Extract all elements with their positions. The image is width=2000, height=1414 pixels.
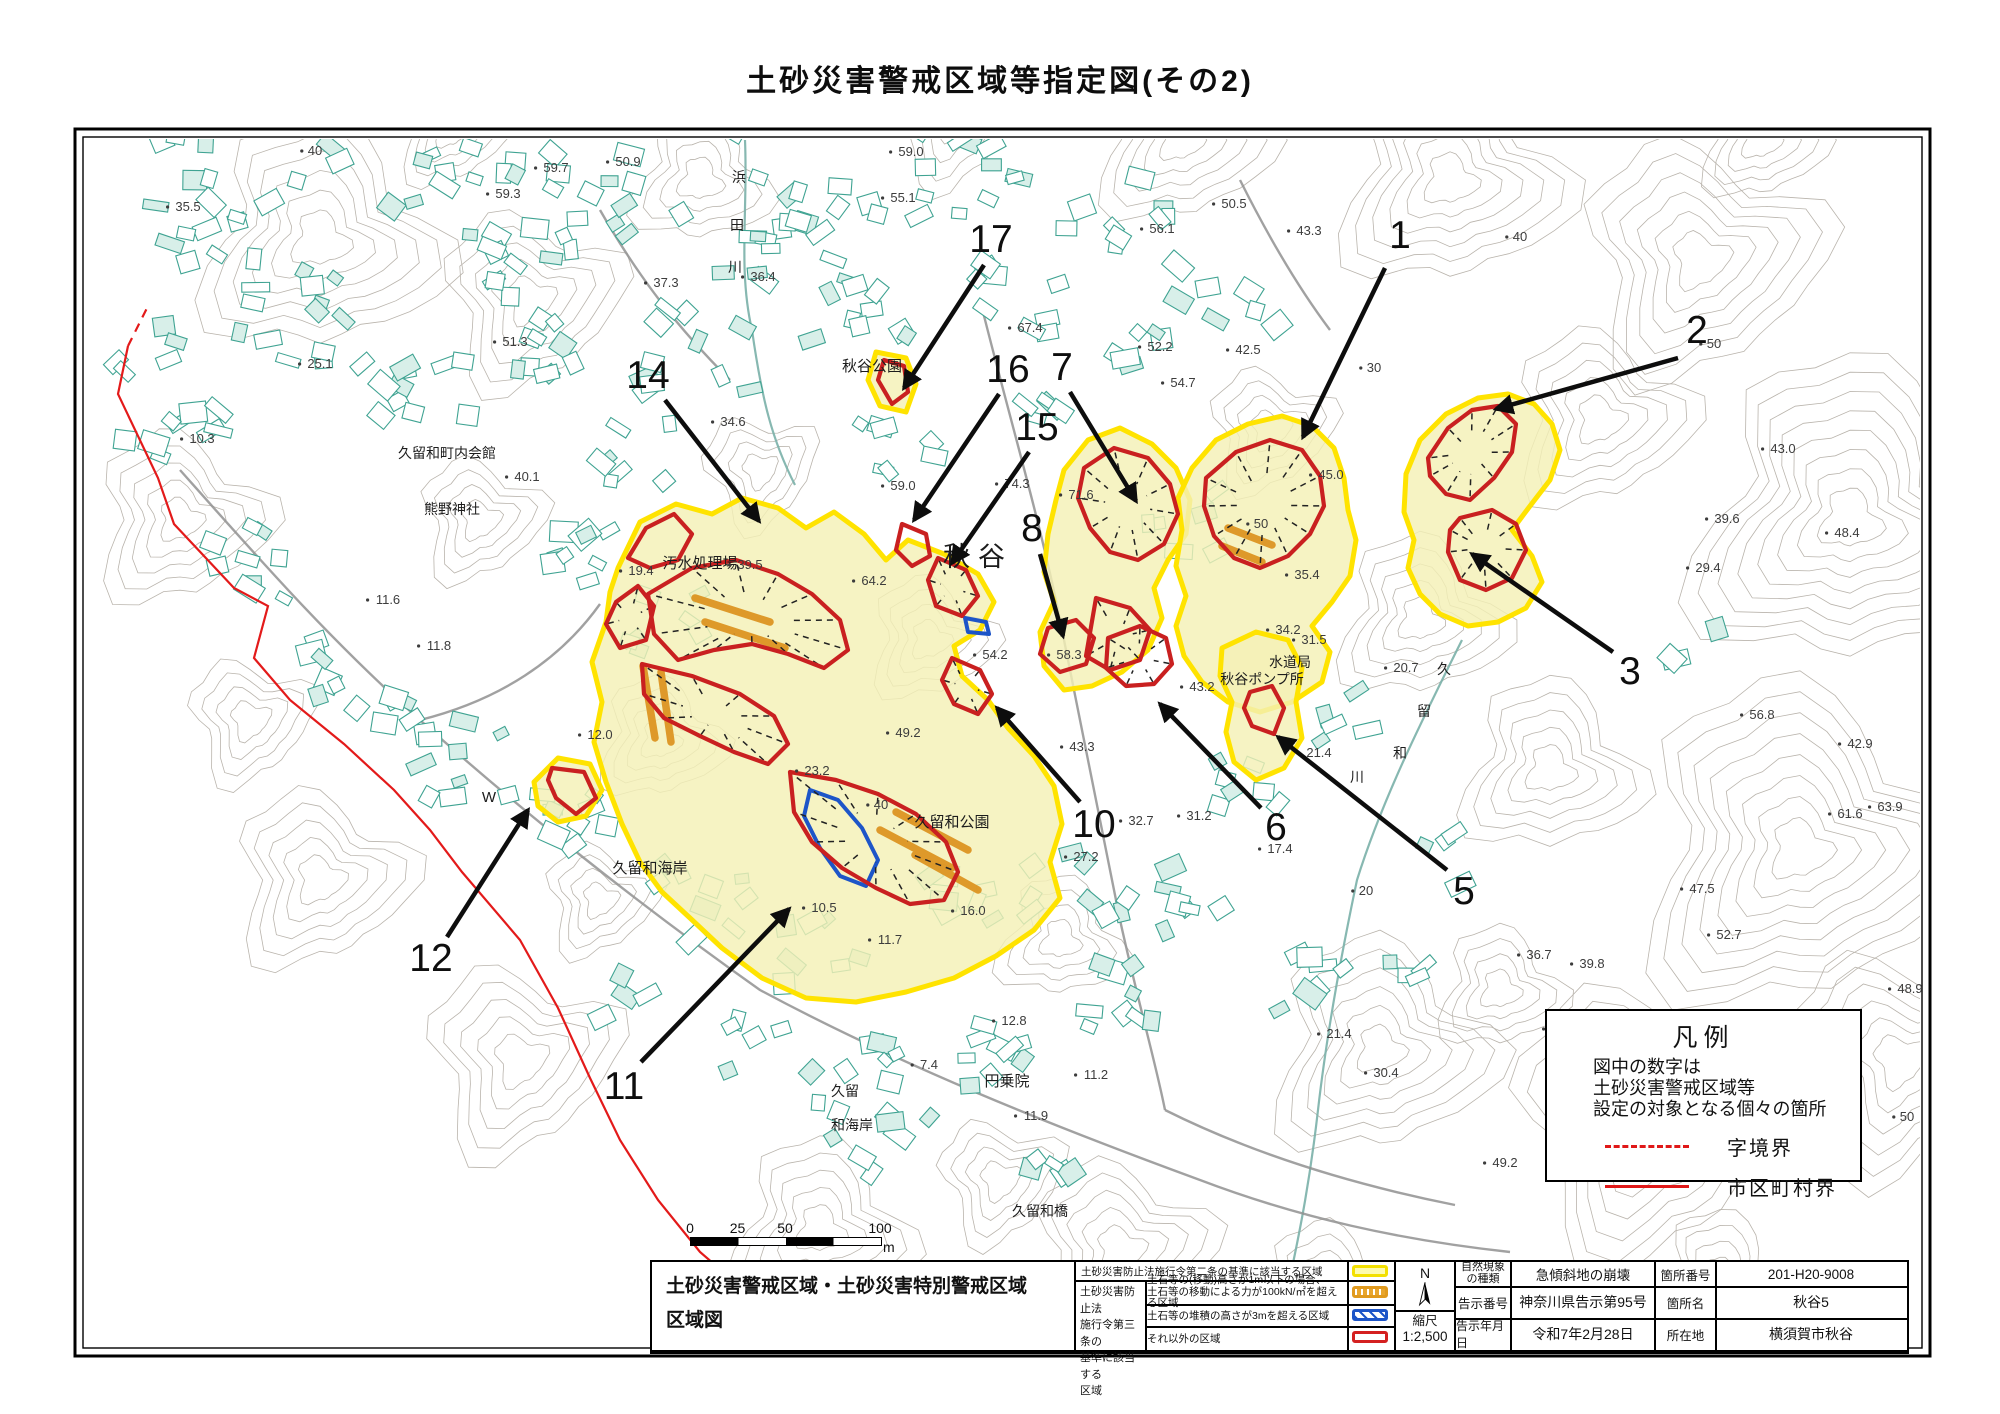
spot-elevation-dot	[1285, 573, 1288, 576]
scale-tick: 25	[730, 1220, 746, 1236]
spot-elevation: 11.9	[1024, 1108, 1048, 1123]
spot-elevation-dot	[1140, 227, 1143, 230]
place-label: 久留	[831, 1083, 859, 1099]
spot-elevation-dot	[1074, 1073, 1077, 1076]
spot-elevation: 64.2	[861, 573, 886, 588]
spot-elevation: 47.5	[1689, 881, 1714, 896]
spot-elevation-dot	[868, 938, 871, 941]
spot-elevation: 48.4	[1834, 525, 1859, 540]
spot-elevation-dot	[1705, 517, 1708, 520]
spot-elevation-dot	[1226, 348, 1229, 351]
spot-elevation-dot	[1838, 742, 1841, 745]
callout-number: 16	[986, 348, 1029, 391]
spot-elevation-dot	[881, 484, 884, 487]
callout-number: 10	[1072, 803, 1115, 846]
spot-elevation: 39.8	[1579, 956, 1604, 971]
field-value: 横須賀市秋谷	[1717, 1318, 1905, 1350]
spot-elevation: 43.3	[1296, 223, 1321, 238]
spot-elevation-dot	[1161, 381, 1164, 384]
spot-elevation-dot	[728, 563, 731, 566]
spot-elevation-dot	[866, 803, 869, 806]
law-row-deposit: 土石等の堆積の高さが3mを超える区域	[1147, 1305, 1345, 1326]
spot-elevation: 34.6	[720, 414, 745, 429]
solid-line-sample	[1605, 1185, 1689, 1188]
spot-elevation-dot	[1505, 235, 1508, 238]
place-label: 秋谷ポンプ所	[1220, 671, 1304, 687]
field-value: 201-H20-9008	[1717, 1262, 1905, 1286]
table-grid-line	[1145, 1304, 1396, 1306]
scale-tick: 0	[686, 1220, 694, 1236]
spot-elevation-dot	[1359, 366, 1362, 369]
place-label: 浜	[732, 169, 746, 185]
field-label: 所在地	[1656, 1318, 1715, 1350]
spot-elevation-dot	[166, 205, 169, 208]
table-grid-line	[1074, 1262, 1076, 1350]
place-label: 円乗院	[984, 1072, 1029, 1090]
scale-bar-ticks: 02550100	[690, 1220, 920, 1237]
spot-elevation: 11.6	[376, 592, 400, 607]
spot-elevation: 42.9	[1847, 736, 1872, 751]
scale-bar: 02550100 m	[690, 1220, 920, 1246]
spot-elevation-dot	[1008, 326, 1011, 329]
spot-elevation-dot	[1517, 953, 1520, 956]
field-label: 箇所番号	[1656, 1262, 1715, 1286]
spot-elevation: 43.0	[1770, 441, 1795, 456]
legend-item-aza-boundary: 字境界	[1605, 1132, 1860, 1161]
scale-bar-unit: m	[883, 1239, 895, 1255]
spot-elevation-dot	[911, 1063, 914, 1066]
spot-elevation: 56.1	[1149, 221, 1174, 236]
spot-elevation-dot	[1292, 638, 1295, 641]
spot-elevation-dot	[300, 149, 303, 152]
special-move-swatch	[1352, 1286, 1388, 1298]
spot-elevation: 56.8	[1749, 707, 1774, 722]
spot-elevation-dot	[1888, 987, 1891, 990]
spot-elevation: 50	[1900, 1109, 1914, 1124]
spot-elevation: 61.6	[1837, 806, 1862, 821]
field-label: 自然現象 の種類	[1456, 1262, 1510, 1286]
north-cell: N	[1396, 1262, 1454, 1310]
spot-elevation-dot	[1246, 522, 1249, 525]
spot-elevation: 50	[1254, 516, 1268, 531]
spot-elevation-dot	[1825, 531, 1828, 534]
spot-elevation: 34.2	[1275, 622, 1300, 637]
spot-elevation-dot	[1828, 812, 1831, 815]
spot-elevation: 35.5	[175, 199, 200, 214]
table-grid-line	[1454, 1318, 1907, 1320]
field-label: 告示番号	[1456, 1286, 1510, 1318]
spot-elevation: 45.0	[1318, 467, 1343, 482]
spot-elevation: 10.5	[811, 900, 836, 915]
table-grid-line	[1454, 1286, 1907, 1288]
spot-elevation: 12.0	[587, 727, 612, 742]
spot-elevation: 54.7	[1170, 375, 1195, 390]
spot-elevation-dot	[1180, 685, 1183, 688]
spot-elevation: 35.4	[1294, 567, 1319, 582]
spot-elevation: 40	[1513, 229, 1527, 244]
spot-elevation: 12.8	[1001, 1013, 1026, 1028]
spot-elevation-dot	[1064, 855, 1067, 858]
spot-elevation-dot	[417, 644, 420, 647]
warning-zone-swatch	[1352, 1265, 1388, 1277]
field-value: 神奈川県告示第95号	[1512, 1286, 1654, 1318]
callout-number: 14	[626, 354, 669, 397]
legend-item-municipal-boundary: 市区町村界	[1605, 1172, 1860, 1201]
table-grid-line	[1145, 1280, 1147, 1350]
law-article3-group-label: 土砂災害防止法 施行令第三条の 基準に該当する 区域	[1076, 1281, 1144, 1350]
spot-elevation-dot	[802, 906, 805, 909]
north-label: N	[1420, 1265, 1430, 1281]
spot-elevation: 51.3	[502, 334, 527, 349]
spot-elevation: 71.6	[1068, 487, 1093, 502]
spot-elevation-dot	[1680, 887, 1683, 890]
spot-elevation: 50.5	[1221, 196, 1246, 211]
spot-elevation: 54.2	[982, 647, 1007, 662]
spot-elevation: 27.2	[1073, 849, 1098, 864]
spot-elevation: 42.5	[1235, 342, 1260, 357]
map-sheet-title: 土砂災害警戒区域・土砂災害特別警戒区域 区域図	[652, 1262, 1074, 1350]
legend-item-label: 字境界	[1727, 1132, 1793, 1161]
spot-elevation: 50	[1707, 336, 1721, 351]
spot-elevation: 20	[1359, 883, 1373, 898]
place-label: 久留和橋	[1012, 1203, 1068, 1219]
spot-elevation: 20.7	[1393, 660, 1418, 675]
spot-elevation: 29.4	[1695, 560, 1720, 575]
spot-elevation-dot	[493, 340, 496, 343]
spot-elevation: 43.3	[1069, 739, 1094, 754]
field-value: 令和7年2月28日	[1512, 1318, 1654, 1350]
legend-note: 図中の数字は 土砂災害警戒区域等 設定の対象となる個々の箇所	[1593, 1057, 1860, 1121]
place-label: 秋谷公園	[842, 358, 902, 375]
spot-elevation-dot	[741, 275, 744, 278]
spot-elevation: 40.1	[514, 469, 539, 484]
spot-elevation: 40	[308, 143, 322, 158]
spot-elevation: 49.2	[895, 725, 920, 740]
spot-elevation-dot	[1761, 447, 1764, 450]
place-label: 川	[1350, 769, 1364, 785]
table-grid-line	[1654, 1262, 1656, 1350]
spot-elevation-dot	[505, 475, 508, 478]
spot-elevation-dot	[606, 160, 609, 163]
scale-tick: 100	[868, 1220, 891, 1236]
spot-elevation: 55.1	[890, 190, 915, 205]
legend-title: 凡例	[1547, 1018, 1860, 1054]
spot-elevation: 36.4	[750, 269, 775, 284]
special-other-swatch	[1352, 1331, 1388, 1343]
table-grid-line	[1394, 1310, 1456, 1312]
spot-elevation-dot	[578, 733, 581, 736]
spot-elevation: 59.0	[890, 478, 915, 493]
spot-elevation: 39.5	[737, 557, 762, 572]
table-grid-line	[1394, 1262, 1396, 1350]
law-row-other: それ以外の区域	[1147, 1327, 1345, 1350]
spot-elevation: 7.4	[920, 1057, 938, 1072]
callout-number: 8	[1021, 507, 1043, 550]
place-label: 久留和町内会館	[398, 445, 496, 461]
spot-elevation: 21.4	[1306, 745, 1331, 760]
spot-elevation-dot	[1060, 745, 1063, 748]
callout-number: 7	[1051, 346, 1073, 389]
place-label: 和海岸	[831, 1117, 873, 1133]
callout-number: 3	[1619, 650, 1641, 693]
spot-elevation: 43.2	[1189, 679, 1214, 694]
field-label: 箇所名	[1656, 1286, 1715, 1318]
spot-elevation-dot	[995, 482, 998, 485]
spot-elevation: 59.3	[495, 186, 520, 201]
spot-elevation-dot	[534, 166, 537, 169]
spot-elevation: 11.2	[1084, 1067, 1108, 1082]
spot-elevation: 10.3	[189, 431, 214, 446]
place-label: 留	[1417, 703, 1431, 719]
place-label: 久留和公園	[914, 814, 989, 831]
spot-elevation: 30	[1367, 360, 1381, 375]
spot-elevation-dot	[1570, 962, 1573, 965]
spot-elevation-dot	[486, 192, 489, 195]
spot-elevation: 32.7	[1128, 813, 1153, 828]
spot-elevation-dot	[1740, 713, 1743, 716]
place-label: 和	[1393, 745, 1407, 761]
callout-number: 2	[1686, 309, 1708, 352]
field-value: 急傾斜地の崩壊	[1512, 1262, 1654, 1286]
spot-elevation-dot	[886, 731, 889, 734]
spot-elevation: 40	[874, 797, 888, 812]
spot-elevation-dot	[1317, 1032, 1320, 1035]
spot-elevation: 21.4	[1326, 1026, 1351, 1041]
spot-elevation-dot	[1483, 1161, 1486, 1164]
scale-cell: 縮尺 1:2,500	[1396, 1310, 1454, 1350]
spot-elevation: 11.8	[427, 638, 451, 653]
spot-elevation: 67.4	[1017, 320, 1042, 335]
spot-elevation-dot	[795, 769, 798, 772]
field-label: 告示年月日	[1456, 1318, 1510, 1350]
spot-elevation-dot	[180, 437, 183, 440]
spot-elevation: 52.7	[1716, 927, 1741, 942]
spot-elevation-dot	[711, 420, 714, 423]
spot-elevation: 52.2	[1147, 339, 1172, 354]
spot-elevation-dot	[644, 281, 647, 284]
spot-elevation-dot	[619, 569, 622, 572]
scale-value: 1:2,500	[1402, 1329, 1447, 1346]
spot-elevation-dot	[852, 579, 855, 582]
spot-elevation: 16.0	[960, 903, 985, 918]
spot-elevation: 37.3	[653, 275, 678, 290]
field-value: 秋谷5	[1717, 1286, 1905, 1318]
place-label: 熊野神社	[424, 501, 480, 517]
spot-elevation-dot	[1364, 1071, 1367, 1074]
table-grid-line	[1454, 1262, 1456, 1350]
spot-elevation: 50.9	[615, 154, 640, 169]
spot-elevation: 25.1	[307, 356, 332, 371]
spot-elevation-dot	[992, 1019, 995, 1022]
table-grid-line	[1510, 1262, 1512, 1350]
place-label: 久	[1437, 661, 1451, 677]
spot-elevation-dot	[881, 196, 884, 199]
place-label: 久留和海岸	[612, 860, 687, 877]
spot-elevation-dot	[973, 653, 976, 656]
spot-elevation-dot	[1686, 566, 1689, 569]
scale-tick: 50	[777, 1220, 793, 1236]
hazard-map-canvas: 秋谷秋谷公園汚水処理場久留和町内会館熊野神社久留和公園久留和海岸久留和海岸円乗院…	[0, 0, 2000, 1414]
spot-elevation-dot	[1384, 666, 1387, 669]
spot-elevation-dot	[1119, 819, 1122, 822]
spot-elevation: 39.6	[1714, 511, 1739, 526]
callout-number: 12	[409, 937, 452, 980]
scale-bar-rule	[690, 1237, 882, 1246]
table-grid-line	[1347, 1262, 1349, 1350]
spot-elevation: 30.4	[1373, 1065, 1398, 1080]
spot-elevation-dot	[951, 909, 954, 912]
spot-elevation-dot	[1212, 202, 1215, 205]
spot-elevation-dot	[1309, 473, 1312, 476]
place-label: 水道局	[1269, 654, 1311, 670]
spot-elevation-dot	[1351, 889, 1354, 892]
spot-elevation: 59.0	[898, 144, 923, 159]
place-label: 川	[728, 259, 742, 275]
dashed-line-sample	[1605, 1145, 1689, 1148]
spot-elevation-dot	[889, 150, 892, 153]
north-arrow-icon	[1416, 1281, 1434, 1307]
spot-elevation: 31.2	[1186, 808, 1211, 823]
spot-elevation-dot	[1868, 805, 1871, 808]
callout-number: 5	[1453, 870, 1475, 913]
map-legend: 凡例 図中の数字は 土砂災害警戒区域等 設定の対象となる個々の箇所 字境界 市区…	[1545, 1009, 1862, 1182]
table-grid-line	[1145, 1326, 1396, 1328]
scale-label: 縮尺	[1412, 1314, 1437, 1330]
table-grid-line	[1074, 1280, 1396, 1282]
spot-elevation: 23.2	[804, 763, 829, 778]
callout-number: 15	[1015, 406, 1058, 449]
spot-elevation: 48.9	[1897, 981, 1922, 996]
spot-elevation-dot	[1059, 493, 1062, 496]
spot-elevation-dot	[1177, 814, 1180, 817]
callout-number: 17	[969, 218, 1012, 261]
law-row-move: 土石等の(移動)高さが1m以下の場合、 土石等の移動による力が100kN/㎡を超…	[1147, 1281, 1345, 1304]
spot-elevation: 36.7	[1526, 947, 1551, 962]
callout-number: 6	[1265, 806, 1287, 849]
spot-elevation-dot	[298, 362, 301, 365]
spot-elevation-dot	[1892, 1115, 1895, 1118]
spot-elevation-dot	[1047, 653, 1050, 656]
spot-elevation-dot	[1287, 229, 1290, 232]
spot-elevation: 49.2	[1492, 1155, 1517, 1170]
spot-elevation: 19.4	[628, 563, 653, 578]
spot-elevation: 63.9	[1877, 799, 1902, 814]
spot-elevation: 11.7	[878, 932, 902, 947]
callout-number: 11	[604, 1065, 645, 1108]
place-label: W	[482, 789, 497, 806]
spot-elevation-dot	[1266, 628, 1269, 631]
place-label: 田	[730, 217, 744, 233]
spot-elevation: 58.3	[1056, 647, 1081, 662]
info-table: 土砂災害警戒区域・土砂災害特別警戒区域 区域図 土砂災害防止法施行令第二条の基準…	[650, 1260, 1909, 1354]
spot-elevation-dot	[1138, 345, 1141, 348]
legend-item-label: 市区町村界	[1727, 1172, 1837, 1201]
special-deposit-swatch	[1352, 1309, 1388, 1321]
spot-elevation-dot	[1014, 1114, 1017, 1117]
spot-elevation-dot	[1707, 933, 1710, 936]
callout-number: 1	[1389, 214, 1411, 257]
spot-elevation: 31.5	[1301, 632, 1326, 647]
table-grid-line	[1715, 1262, 1717, 1350]
place-label: 汚水処理場	[662, 555, 737, 572]
spot-elevation: 59.7	[543, 160, 568, 175]
spot-elevation-dot	[1258, 847, 1261, 850]
spot-elevation-dot	[366, 598, 369, 601]
